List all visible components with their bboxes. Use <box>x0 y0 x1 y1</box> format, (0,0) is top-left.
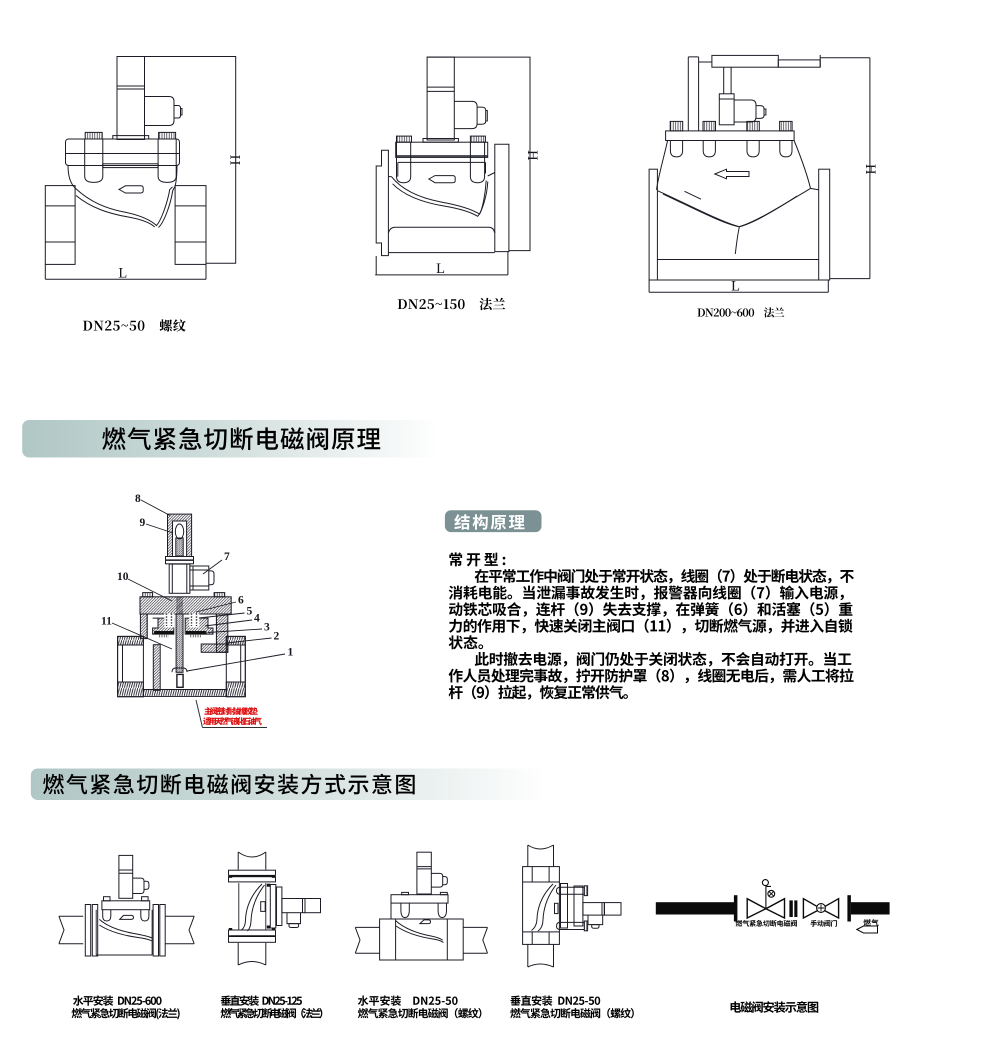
svg-text:3: 3 <box>264 622 270 634</box>
svg-text:8: 8 <box>135 493 141 505</box>
svg-text:1: 1 <box>288 647 294 659</box>
svg-text:7: 7 <box>224 551 230 563</box>
svg-text:2: 2 <box>274 631 280 643</box>
svg-text:9: 9 <box>140 517 146 529</box>
svg-text:H: H <box>524 150 540 161</box>
svg-text:H: H <box>862 164 878 175</box>
svg-text:6: 6 <box>238 595 244 607</box>
svg-text:10: 10 <box>117 571 129 583</box>
svg-text:5: 5 <box>247 606 253 618</box>
svg-text:L: L <box>731 279 740 295</box>
svg-text:L: L <box>436 261 445 277</box>
svg-text:L: L <box>118 266 127 282</box>
svg-text:11: 11 <box>101 616 112 628</box>
svg-text:H: H <box>227 155 243 166</box>
svg-text:4: 4 <box>254 613 260 625</box>
